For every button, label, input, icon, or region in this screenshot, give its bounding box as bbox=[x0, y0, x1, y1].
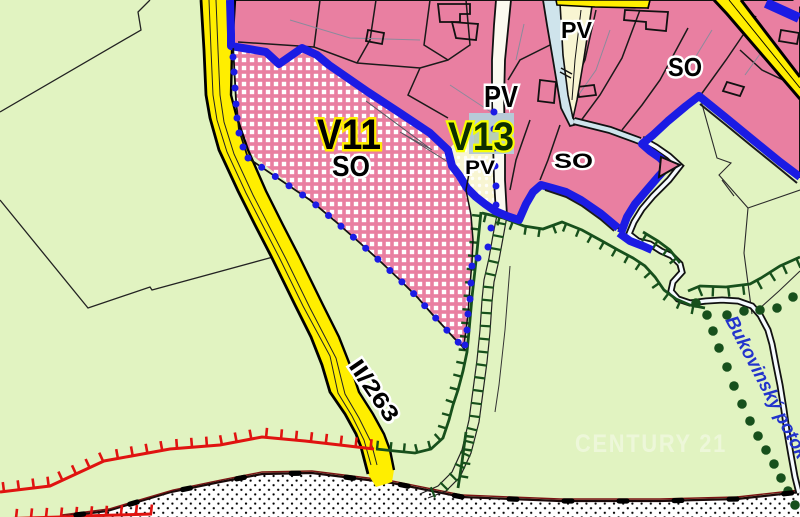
svg-text:V13: V13 bbox=[448, 115, 514, 159]
svg-text:CENTURY 21: CENTURY 21 bbox=[575, 430, 727, 458]
svg-text:SO: SO bbox=[332, 151, 370, 183]
svg-text:PV: PV bbox=[561, 17, 593, 43]
svg-text:PV: PV bbox=[465, 158, 495, 179]
svg-text:PV: PV bbox=[484, 79, 518, 114]
svg-text:SO: SO bbox=[668, 52, 702, 82]
svg-text:SO: SO bbox=[554, 150, 593, 173]
